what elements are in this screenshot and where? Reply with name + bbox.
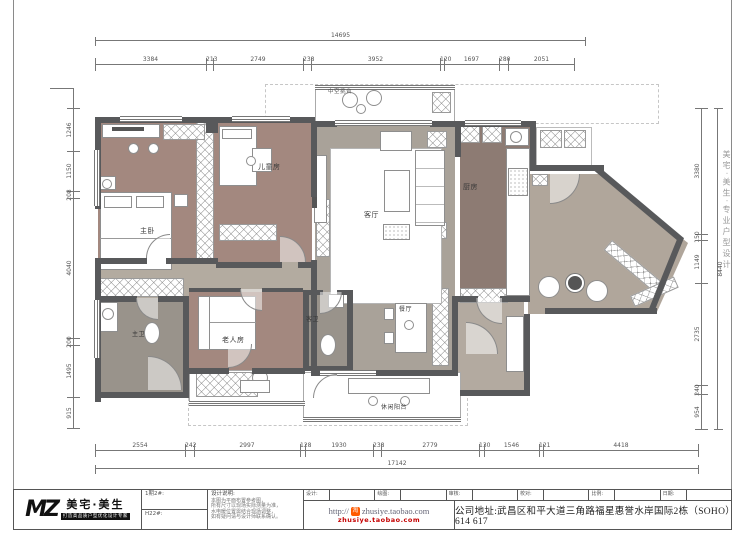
title-block: MZ 美宅·美生 打造高品质户型优化设计专家 1期2#: H22#: 设计说明:… [13, 489, 732, 530]
label-dining-room: 餐厅 [399, 307, 412, 313]
project-field-1: 1期2#: [142, 490, 207, 510]
logo-mark: MZ [25, 499, 57, 521]
wall [311, 127, 317, 197]
fan-icon [102, 179, 112, 189]
project-fields: 1期2#: H22#: [142, 490, 208, 529]
window [189, 401, 305, 406]
label-master-bedroom: 主卧 [140, 228, 155, 235]
plant-box [532, 174, 548, 186]
dim-value: 213 [206, 57, 213, 63]
window [303, 417, 461, 422]
dim-chain-top: 3384 213 2749 238 3952 120 1697 280 2051 [95, 64, 575, 65]
dining-chair [384, 332, 394, 344]
logo-name: 美宅·美生 [66, 499, 124, 512]
watermark-text: 美宅·美生·专业户型设计 [721, 150, 732, 271]
wardrobe-master [163, 124, 205, 140]
wall [183, 296, 189, 398]
label-top-balcony: 中空挑台 [328, 90, 352, 96]
dim-value: 242 [185, 443, 194, 449]
dim-extension-line [73, 88, 74, 108]
floor-plan-sheet: 主卧 儿童房 客厅 厨房 餐厅 休闲阳台 主卫 老人房 客卫 中空挑台 1469… [0, 0, 738, 536]
wall [252, 368, 305, 374]
shop-url-cell: http:// zhusiye.taobao.com zhusiye.taoba… [304, 501, 455, 529]
field-value [330, 490, 375, 500]
blanket-line [210, 322, 256, 323]
label-guest-bath: 客卫 [306, 317, 319, 323]
dim-top-total: 14695 [95, 40, 586, 41]
dim-value: 17142 [95, 461, 699, 467]
stool [368, 396, 378, 406]
signature-fields: 设计: 绘图: 审核: 校对: 比例: 日期: [304, 490, 731, 501]
wall-pillar [206, 117, 218, 133]
shoe-cabinet [506, 316, 524, 372]
balcony-chair [366, 90, 382, 106]
armchair [380, 131, 412, 151]
closet-corridor [98, 278, 184, 297]
headboard-shelf [198, 296, 210, 350]
title-block-main: 设计: 绘图: 审核: 校对: 比例: 日期: http:// zhusiye.… [304, 490, 731, 529]
dim-value: 2554 [95, 443, 185, 449]
wall [95, 258, 147, 264]
toilet [320, 334, 336, 356]
window [120, 116, 182, 122]
field-label-design: 设计: [304, 490, 330, 500]
wall [166, 258, 218, 264]
fridge [460, 126, 480, 143]
pillow [104, 196, 132, 208]
desk-chair [246, 156, 256, 166]
label-children-room: 儿童房 [258, 164, 281, 171]
wall [189, 288, 241, 292]
bowl-chair [538, 276, 560, 298]
wall [158, 296, 185, 302]
dim-chain-left: 1246 1150 208 4040 200 1495 915 [73, 108, 74, 429]
dim-value: 4418 [543, 443, 699, 449]
dim-value: 3380 [695, 163, 701, 178]
dim-value: 238 [373, 443, 381, 449]
dim-value: 2735 [695, 326, 701, 341]
window [232, 116, 290, 122]
window [465, 120, 521, 126]
field-value [615, 490, 660, 500]
vestibule-cabinet [540, 130, 562, 148]
notes-title: 设计说明: [211, 492, 300, 498]
url-prefix: http:// [329, 507, 349, 516]
field-value [473, 490, 518, 500]
coffee-table [384, 170, 410, 212]
dim-value: 238 [303, 57, 311, 63]
label-living-room: 客厅 [364, 212, 379, 219]
dim-value: 1930 [305, 443, 373, 449]
bowl-chair [586, 280, 608, 302]
wall [95, 392, 189, 398]
notes-line: 如有疑问请与设计师联系确认。 [211, 515, 300, 521]
wall [95, 296, 137, 302]
vestibule-cabinet [564, 130, 586, 148]
round-table [566, 274, 584, 292]
teapot [404, 320, 414, 330]
dining-chair [384, 308, 394, 320]
dim-value: 1495 [67, 363, 73, 378]
tv-on-dresser [112, 127, 144, 131]
label-leisure-balcony: 休闲阳台 [381, 405, 407, 411]
wardrobe-column [196, 120, 214, 262]
stool [128, 143, 139, 154]
dim-value: 4040 [67, 260, 73, 275]
shop-url-red: zhusiye.taobao.com [338, 517, 420, 524]
dim-value: 915 [67, 407, 73, 418]
wall [216, 262, 282, 268]
wall [524, 314, 530, 396]
field-label-scale: 比例: [589, 490, 615, 500]
dim-value: 2749 [213, 57, 303, 63]
dim-value: 1149 [695, 254, 701, 269]
sofa [415, 150, 445, 226]
dim-value: 954 [695, 406, 701, 417]
balcony-cabinet [432, 92, 451, 113]
label-kitchen: 厨房 [463, 184, 478, 191]
label-master-bath: 主卫 [132, 332, 145, 338]
wall [262, 288, 303, 292]
dim-value: 3384 [95, 57, 206, 63]
dim-value: 2779 [381, 443, 479, 449]
nightstand [174, 194, 188, 207]
logo: MZ 美宅·美生 打造高品质户型优化设计专家 [14, 490, 142, 529]
field-label-date: 日期: [661, 490, 687, 500]
dim-value: 1697 [444, 57, 499, 63]
stove [508, 168, 528, 196]
project-field-2: H22#: [142, 510, 207, 529]
dim-value: 2997 [194, 443, 300, 449]
shop-url-line: http:// zhusiye.taobao.com [329, 507, 430, 516]
label-elder-room: 老人房 [222, 337, 245, 344]
speaker-box [427, 131, 447, 148]
wall [458, 296, 478, 302]
wall [530, 121, 536, 171]
toilet [144, 322, 160, 344]
field-value [544, 490, 589, 500]
dim-extension-line [50, 88, 74, 89]
logo-slogan: 打造高品质户型优化设计专家 [61, 513, 130, 520]
stool [148, 143, 159, 154]
dim-value: 1150 [67, 163, 73, 178]
window [94, 150, 100, 206]
dim-chain-right: 3380 150 1149 2735 240 954 [701, 108, 702, 430]
title-block-bottom: http:// zhusiye.taobao.com zhusiye.taoba… [304, 501, 731, 529]
dim-value: 280 [499, 57, 508, 63]
wall [347, 290, 353, 372]
taobao-icon [351, 507, 360, 516]
dim-value: 1546 [484, 443, 539, 449]
wall [460, 390, 530, 396]
balcony-desk [240, 380, 270, 393]
piano-bench [348, 378, 430, 394]
wall [311, 290, 317, 376]
dim-value: 2051 [508, 57, 575, 63]
washer [482, 126, 502, 143]
ottoman [383, 224, 410, 240]
wall [298, 262, 315, 268]
dim-right-total: 8440 [717, 108, 718, 430]
window [94, 300, 100, 358]
wall [189, 368, 229, 374]
wall [545, 308, 657, 314]
company-address: 公司地址:武昌区和平大道三角路福星惠誉水岸国际2栋（SOHO）614 617 [455, 501, 731, 529]
wall [452, 296, 458, 376]
dim-value: 1246 [67, 122, 73, 137]
sink-icon [510, 131, 522, 143]
field-label-draw: 绘图: [375, 490, 401, 500]
dim-value: 150 [695, 231, 701, 242]
pillow [136, 196, 164, 208]
pillow [222, 129, 252, 139]
wall [303, 290, 309, 370]
basin-icon [102, 308, 114, 320]
dim-value: 14695 [95, 33, 586, 39]
field-value [401, 490, 446, 500]
dim-chain-bottom: 2554 242 2997 128 1930 238 2779 130 1546… [95, 450, 699, 451]
field-label-check: 审核: [447, 490, 473, 500]
design-notes: 设计说明: 本图为平面布置参考图， 所有尺寸以现场实际测量为准， 水电暖位置需结… [208, 490, 304, 529]
dim-bottom-total: 17142 [95, 468, 699, 469]
wall [500, 296, 530, 302]
url-main: zhusiye.taobao.com [362, 507, 430, 516]
wardrobe-children [219, 224, 277, 241]
field-label-proof: 校对: [518, 490, 544, 500]
balcony-table [356, 104, 366, 114]
field-value [687, 490, 731, 500]
dim-value: 3952 [311, 57, 440, 63]
window [335, 120, 432, 126]
